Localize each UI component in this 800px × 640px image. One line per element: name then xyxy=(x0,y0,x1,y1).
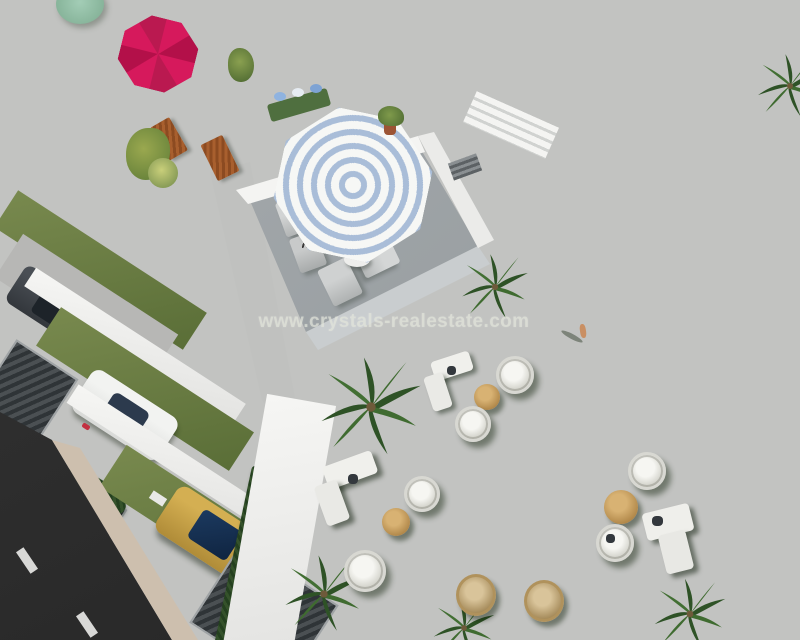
watermark: www.crystals-realestate.com xyxy=(259,311,530,333)
terrace-plant-tall xyxy=(228,48,254,82)
aerial-render-scene: www.crystals-realestate.com xyxy=(0,0,800,640)
terrace-plant xyxy=(148,158,178,188)
hanging-egg-chair xyxy=(628,452,666,490)
hanging-egg-chair xyxy=(596,524,634,562)
pot-plant-leaves xyxy=(378,106,404,126)
hanging-egg-chair xyxy=(344,550,386,592)
palm-tree xyxy=(752,48,800,124)
flowers-blue xyxy=(310,84,322,93)
palm-tree xyxy=(312,348,430,466)
person-in-chair xyxy=(606,534,615,543)
palm-tree xyxy=(648,572,732,640)
round-coffee-table xyxy=(604,490,638,524)
hanging-egg-chair xyxy=(455,406,491,442)
round-coffee-table xyxy=(382,508,410,536)
hanging-egg-chair-rattan xyxy=(524,580,564,622)
flowers-blue xyxy=(274,92,286,101)
person-seated xyxy=(652,516,663,526)
person-seated xyxy=(447,366,456,375)
hanging-egg-chair xyxy=(404,476,440,512)
hanging-egg-chair-rattan xyxy=(456,574,496,616)
flowers-white xyxy=(292,88,304,97)
person-seated xyxy=(348,474,358,484)
hanging-egg-chair xyxy=(496,356,534,394)
